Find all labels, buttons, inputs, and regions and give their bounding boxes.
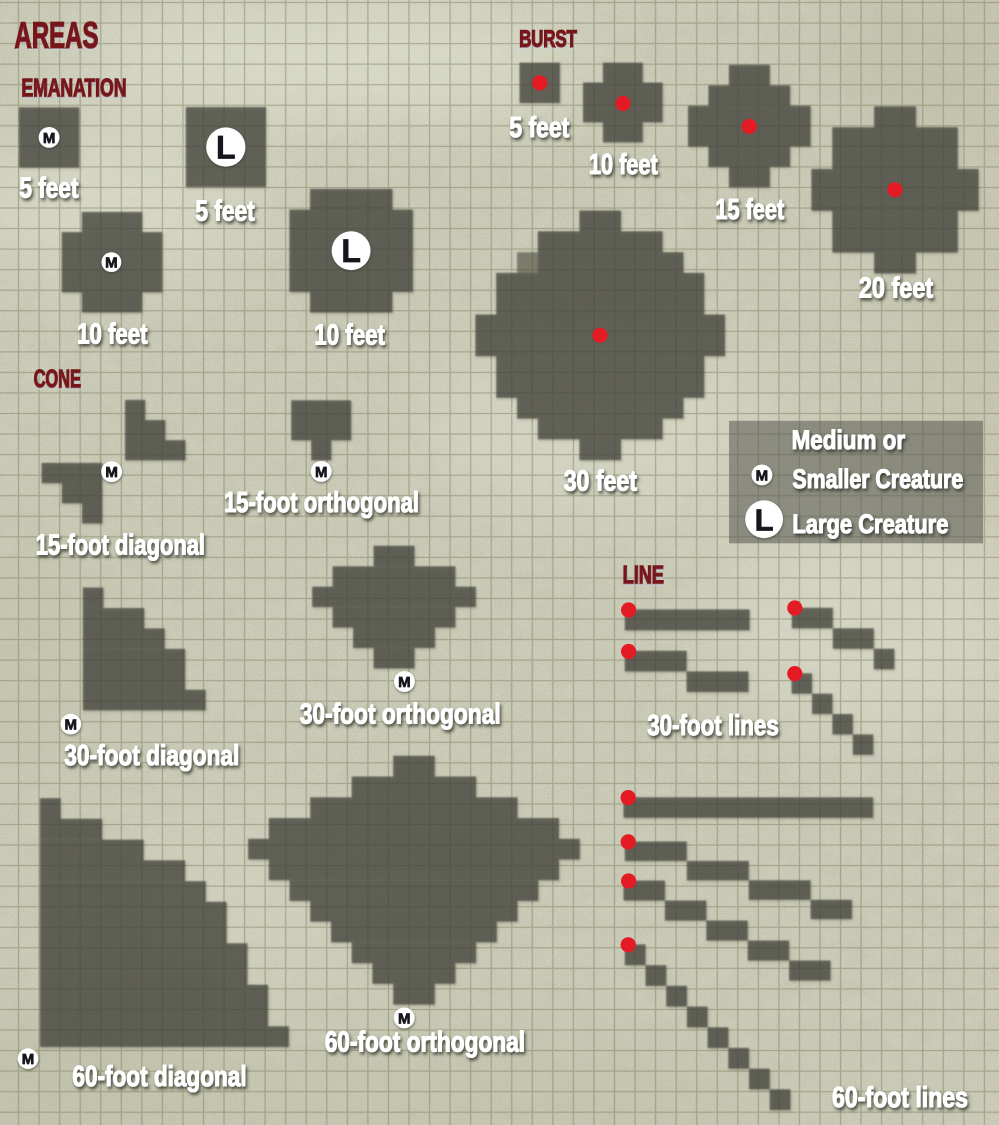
svg-text:EMANATION: EMANATION: [22, 75, 127, 103]
svg-text:M: M: [756, 467, 769, 484]
svg-text:10 feet: 10 feet: [314, 320, 385, 352]
svg-text:Large Creature: Large Creature: [792, 509, 948, 539]
svg-text:M: M: [398, 1010, 411, 1027]
svg-text:CONE: CONE: [34, 365, 81, 393]
svg-text:M: M: [65, 717, 78, 734]
svg-text:L: L: [216, 130, 236, 166]
svg-text:30-foot diagonal: 30-foot diagonal: [64, 740, 239, 772]
svg-text:5 feet: 5 feet: [509, 112, 569, 144]
svg-text:M: M: [22, 1051, 35, 1068]
svg-text:60-foot lines: 60-foot lines: [832, 1082, 968, 1114]
svg-text:15-foot orthogonal: 15-foot orthogonal: [224, 487, 419, 519]
svg-text:L: L: [341, 233, 361, 269]
svg-text:15-foot diagonal: 15-foot diagonal: [36, 530, 205, 562]
svg-text:Smaller Creature: Smaller Creature: [792, 464, 963, 494]
svg-text:5 feet: 5 feet: [19, 173, 78, 205]
svg-text:60-foot orthogonal: 60-foot orthogonal: [325, 1027, 525, 1059]
svg-text:30-foot lines: 30-foot lines: [647, 710, 779, 742]
svg-text:Medium or: Medium or: [792, 425, 906, 455]
svg-text:M: M: [105, 464, 118, 481]
svg-text:M: M: [398, 674, 411, 691]
svg-text:10 feet: 10 feet: [77, 319, 148, 351]
svg-text:L: L: [755, 502, 774, 537]
svg-text:30-foot orthogonal: 30-foot orthogonal: [300, 699, 501, 731]
svg-text:30 feet: 30 feet: [564, 466, 638, 498]
svg-text:10 feet: 10 feet: [589, 149, 658, 181]
svg-text:LINE: LINE: [623, 561, 664, 589]
svg-text:15 feet: 15 feet: [715, 194, 784, 226]
svg-text:M: M: [315, 464, 328, 481]
svg-text:BURST: BURST: [519, 26, 577, 53]
svg-text:AREAS: AREAS: [15, 15, 99, 56]
svg-text:5 feet: 5 feet: [195, 195, 255, 227]
svg-text:M: M: [43, 130, 56, 147]
svg-text:M: M: [105, 255, 118, 272]
svg-text:60-foot diagonal: 60-foot diagonal: [72, 1061, 246, 1093]
svg-text:20 feet: 20 feet: [859, 273, 934, 305]
